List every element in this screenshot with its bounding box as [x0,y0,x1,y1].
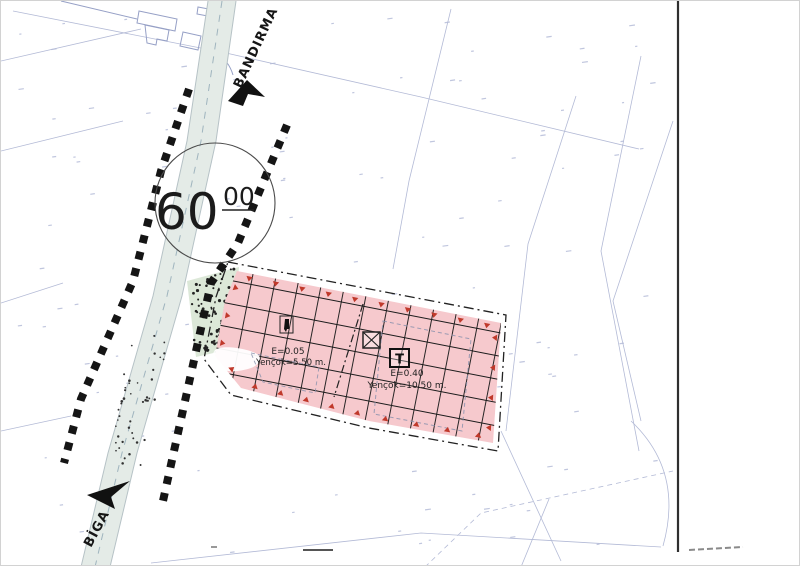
roadside-dot [118,409,120,411]
faint-number-mark [580,48,585,50]
cadastral-line [1,121,123,151]
stipple-dot [195,283,198,286]
roadside-dot [136,441,139,444]
faint-number-mark [510,536,515,538]
faint-number-mark [510,504,513,506]
cadastral-line [1,416,71,431]
faint-number-mark [352,92,354,93]
stipple-dot [230,268,232,270]
stipple-dot [200,303,202,305]
faint-number-mark [541,130,545,132]
roadside-dot [118,447,120,449]
stipple-dot [232,276,234,278]
commercial-symbol: T [395,353,404,368]
faint-number-mark [643,295,648,297]
stipple-dot [213,340,215,342]
faint-number-mark [89,107,94,109]
faint-number-mark [653,460,658,462]
faint-number-mark [566,250,572,252]
roadside-dot [123,373,125,375]
commercial-zone-height: Yençok=10.50 m. [366,381,446,391]
site-plan-map: E=0.05 Yençok=5.50 m. T E=0.40 Yençok=10… [1,1,800,566]
faint-number-mark [18,325,22,327]
faint-number-mark [289,217,293,219]
roadside-dot [130,393,132,395]
stipple-dot [232,268,235,271]
left-zone-emsal: E=0.05 [271,347,304,357]
faint-number-mark [536,342,541,344]
roadside-dot [131,432,133,434]
faint-number-mark [165,393,168,395]
stipple-dot [210,333,213,336]
commercial-zone-emsal: E=0.40 [390,369,424,379]
faint-number-mark [473,287,475,289]
roadside-dot [124,457,126,459]
faint-number-mark [354,261,358,263]
faint-number-mark [459,217,464,219]
roadside-dot [152,369,154,371]
faint-number-mark [52,156,56,158]
faint-number-mark [429,539,431,540]
roadside-dot [159,356,161,358]
faint-number-mark [471,50,474,52]
building-outline [61,1,137,19]
faint-number-mark [400,77,403,79]
stipple-dot [216,330,219,333]
faint-number-mark [512,157,516,159]
stipple-dot [196,289,199,292]
cadastral-line [613,121,673,421]
roadside-dot [115,425,117,427]
faint-number-mark [62,23,65,25]
faint-number-mark [425,508,431,510]
roadside-dot [117,435,119,437]
roadside-dot [121,441,123,443]
stipple-dot [211,308,213,310]
stipple-dot [219,273,221,275]
faint-number-mark [527,510,531,512]
faint-number-mark [497,386,501,388]
cadastral-line-dashed [425,471,673,566]
faint-number-mark [430,141,435,143]
cadastral-line [521,499,549,566]
stipple-dot [192,292,195,295]
faint-number-mark [85,363,90,365]
faint-number-mark [197,470,199,471]
faint-number-mark [422,236,424,237]
faint-number-mark [19,33,21,34]
stipple-dot [193,339,196,342]
faint-number-mark [640,148,644,150]
faint-number-mark [561,109,564,111]
faint-number-mark [574,411,579,413]
faint-number-mark [622,102,624,103]
faint-number-mark [412,470,417,472]
roadside-dot [115,450,117,452]
scan-smudge [689,547,743,550]
roadside-dot [120,403,122,405]
building-outline [145,25,169,45]
faint-number-mark [519,361,525,363]
roadside-dot [115,442,117,444]
roadside-dot [163,352,165,354]
faint-number-mark [398,530,401,532]
faint-number-mark [96,392,99,394]
faint-number-mark [504,245,509,247]
cadastral-line [393,9,451,269]
roadside-dot [121,462,124,465]
faint-number-mark [331,23,334,25]
left-zone-height: Yençok=5.50 m. [255,358,326,368]
cadastral-line [506,96,576,431]
faint-number-mark [359,173,363,175]
faint-number-mark [124,19,127,21]
faint-number-mark [146,112,151,114]
faint-number-mark [165,129,168,131]
stipple-dot [199,341,202,344]
faint-number-mark [43,326,46,328]
faint-number-mark [40,268,45,270]
faint-number-mark [635,46,637,48]
roadside-dot [140,464,142,466]
cadastral-line [501,431,561,561]
roadside-dot [128,382,130,384]
faint-number-mark [540,134,545,136]
cadastral-line [1,29,141,61]
faint-number-mark [116,355,119,357]
faint-number-mark [80,531,84,533]
roadside-dot [129,420,131,422]
faint-number-mark [280,151,285,153]
faint-number-mark [173,107,177,109]
stipple-dot [218,299,221,302]
roadside-dot [163,342,165,344]
faint-number-mark [18,88,23,90]
roadside-dot [132,437,134,439]
faint-number-mark [76,161,80,163]
cadastral-line [151,533,661,563]
stipple-dot [199,284,201,286]
faint-number-mark [564,469,568,471]
stipple-dot [207,349,209,351]
faint-number-mark [484,508,490,510]
stipple-dot [213,343,215,345]
faint-number-mark [283,178,285,179]
cadastral-line [13,11,639,149]
faint-number-mark [387,18,392,20]
faint-number-mark [582,61,588,63]
faint-number-mark [650,82,656,84]
roadside-dot [143,439,145,441]
road-width-value: 60 [155,183,219,241]
roadside-dot [117,419,119,421]
roadside-dot [153,352,155,354]
roadside-dot [147,400,149,402]
stipple-dot [216,335,218,337]
roadside-dot [131,345,133,347]
faint-number-mark [185,324,189,326]
commercial-symbol-box: T [390,349,409,368]
roadside-dot [118,415,120,417]
faint-number-mark [614,154,619,156]
roadside-dot [163,359,165,361]
faint-number-mark [459,80,462,82]
roadside-dot [124,389,126,391]
stipple-dot [196,311,198,313]
faint-number-mark [381,177,384,179]
stipple-dot [198,305,200,307]
stipple-dot [212,287,214,289]
roadside-dot [128,379,131,382]
cadastral-line [1,283,63,303]
scanned-zoning-plan-page: E=0.05 Yençok=5.50 m. T E=0.40 Yençok=10… [0,0,800,566]
faint-number-mark [509,353,513,355]
stipple-dot [214,274,216,276]
faint-number-mark [230,551,235,553]
faint-number-mark [285,137,287,138]
faint-number-mark [472,494,475,496]
roadside-dot [144,399,147,402]
roadside-dot [146,396,148,398]
roadside-dot [151,378,153,380]
faint-number-mark [57,308,62,310]
roadside-dot [123,397,126,400]
faint-number-mark [547,347,549,349]
stipple-dot [197,299,199,301]
faint-number-mark [281,179,286,181]
roadside-dot [148,398,150,400]
roadside-dot [153,335,155,337]
faint-number-mark [552,375,556,377]
faint-number-mark [419,543,422,545]
faint-number-mark [442,245,448,247]
roadside-dot [142,401,144,403]
transformer-icon [363,332,380,348]
faint-number-mark [481,98,486,100]
roadside-dot [137,382,139,384]
roadside-dot [124,387,126,389]
stipple-dot [191,303,193,305]
roadside-dot [153,398,155,400]
stipple-dot [214,312,217,315]
faint-number-mark [450,79,455,81]
faint-number-mark [45,457,47,458]
road-width-decimals: 00 [223,182,255,211]
faint-number-mark [181,66,187,68]
faint-number-mark [335,494,338,496]
faint-number-mark [498,200,502,202]
faint-number-mark [52,118,56,120]
faint-number-mark [547,466,553,468]
faint-number-mark [48,224,52,226]
faint-number-mark [271,147,273,148]
faint-number-mark [73,156,75,158]
roadside-dot [128,427,130,429]
road-name-bandirma: BANDIRMA [231,5,282,91]
roadside-dot [120,400,123,403]
faint-number-mark [90,193,95,195]
planned-zone: E=0.05 Yençok=5.50 m. T E=0.40 Yençok=10… [204,262,506,451]
roadside-dot [128,453,131,456]
faint-number-mark [562,168,564,169]
faint-number-mark [546,36,552,38]
faint-number-mark [548,373,552,375]
stipple-dot [205,284,208,287]
faint-number-mark [574,354,578,356]
faint-number-mark [292,512,295,514]
faint-number-mark [75,304,79,306]
faint-number-mark [60,504,64,506]
cadastral-line [601,56,641,451]
faint-number-mark [629,24,635,26]
